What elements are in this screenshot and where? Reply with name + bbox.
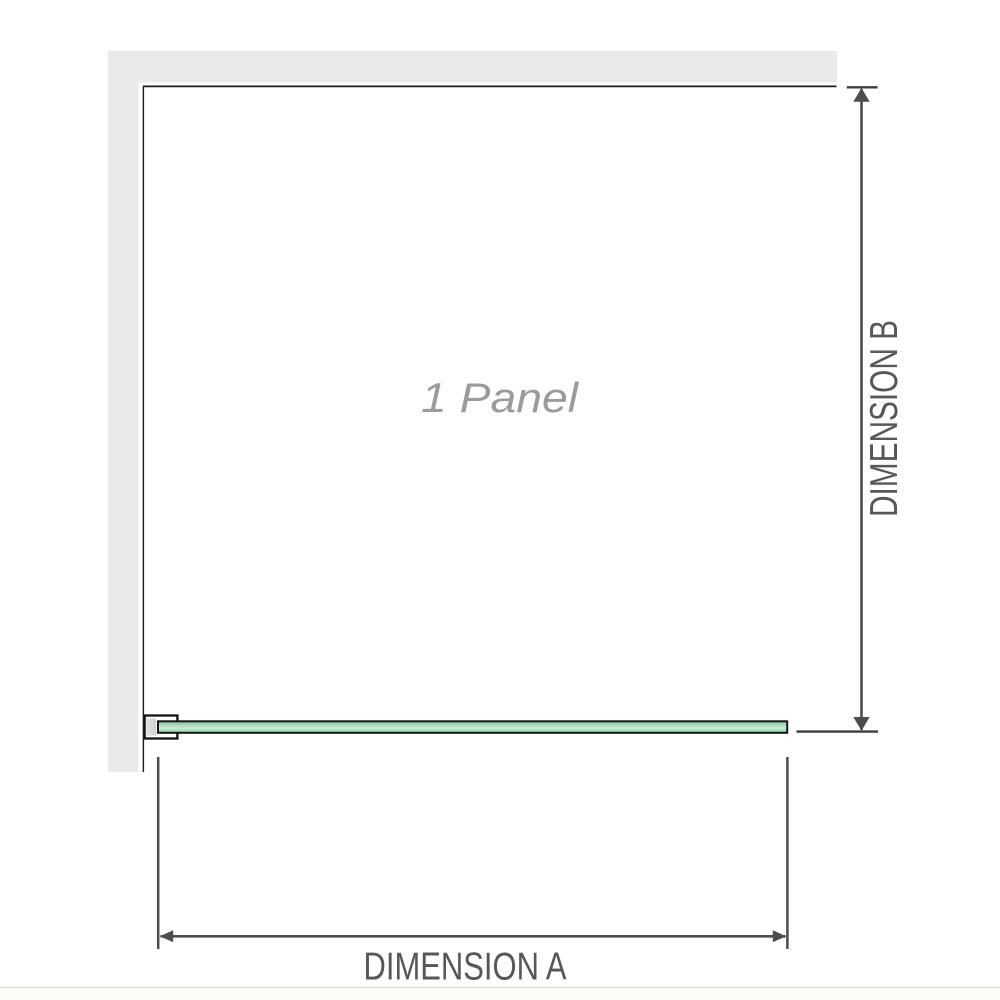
svg-text:1 Panel: 1 Panel bbox=[421, 374, 580, 421]
svg-text:DIMENSION B: DIMENSION B bbox=[863, 320, 906, 517]
svg-text:DIMENSION A: DIMENSION A bbox=[364, 946, 567, 989]
